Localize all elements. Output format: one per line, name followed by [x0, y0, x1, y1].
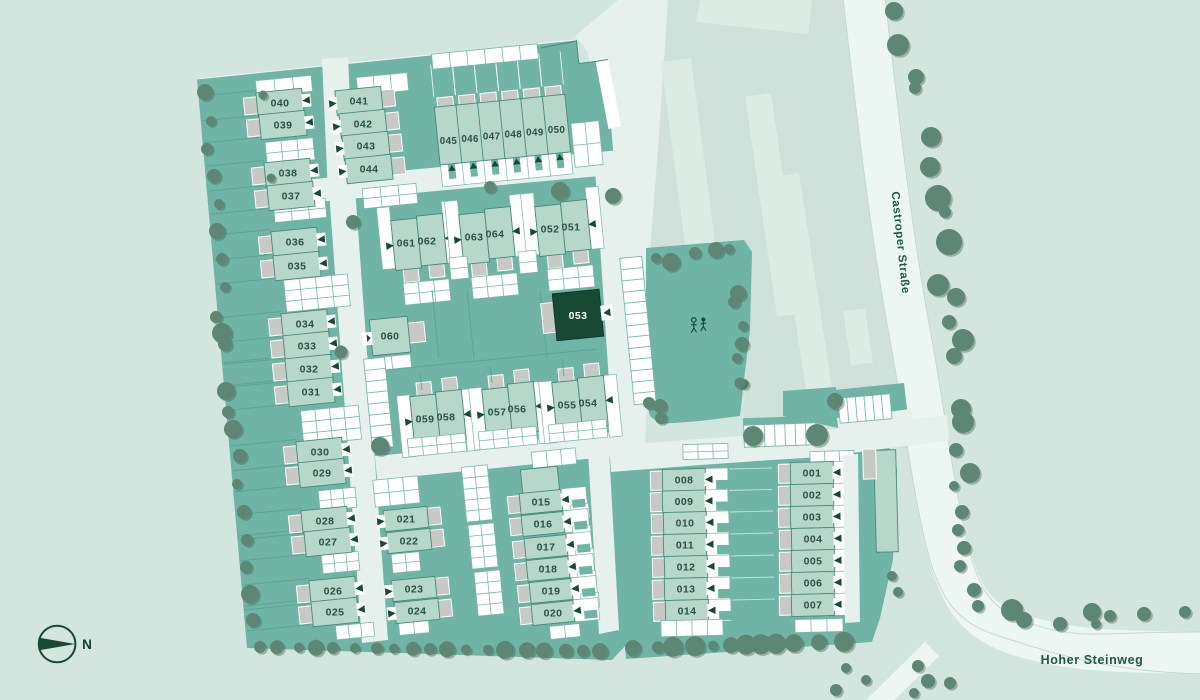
- svg-text:018: 018: [539, 564, 558, 576]
- svg-text:007: 007: [804, 600, 823, 612]
- svg-text:011: 011: [676, 540, 694, 552]
- svg-text:009: 009: [675, 496, 694, 508]
- svg-text:036: 036: [286, 237, 305, 249]
- svg-text:045: 045: [440, 136, 458, 147]
- svg-text:023: 023: [405, 584, 424, 596]
- svg-text:N: N: [82, 637, 92, 652]
- svg-text:056: 056: [508, 404, 527, 416]
- svg-text:015: 015: [532, 497, 551, 509]
- svg-text:038: 038: [279, 168, 298, 180]
- svg-text:004: 004: [804, 534, 823, 546]
- svg-text:052: 052: [541, 224, 560, 236]
- svg-text:031: 031: [302, 387, 321, 399]
- svg-text:029: 029: [313, 468, 332, 480]
- svg-text:003: 003: [803, 512, 822, 524]
- svg-text:037: 037: [282, 191, 301, 203]
- svg-text:024: 024: [408, 606, 427, 618]
- svg-text:010: 010: [676, 518, 695, 530]
- svg-text:041: 041: [350, 96, 369, 108]
- svg-text:019: 019: [542, 586, 561, 598]
- svg-text:035: 035: [288, 261, 307, 273]
- svg-text:020: 020: [544, 608, 563, 620]
- svg-text:055: 055: [558, 400, 577, 412]
- svg-text:025: 025: [326, 607, 345, 619]
- svg-text:017: 017: [537, 542, 556, 554]
- svg-text:032: 032: [300, 364, 319, 376]
- svg-text:001: 001: [803, 468, 822, 480]
- svg-text:034: 034: [296, 319, 315, 331]
- svg-text:040: 040: [271, 98, 290, 110]
- svg-text:008: 008: [675, 475, 694, 487]
- svg-text:Hoher Steinweg: Hoher Steinweg: [1041, 653, 1144, 667]
- svg-text:014: 014: [678, 606, 697, 618]
- svg-text:022: 022: [400, 536, 419, 548]
- svg-text:051: 051: [562, 222, 581, 234]
- svg-text:043: 043: [357, 141, 376, 153]
- svg-text:016: 016: [534, 519, 553, 531]
- svg-text:049: 049: [526, 127, 544, 138]
- svg-text:053: 053: [569, 310, 588, 322]
- svg-text:002: 002: [803, 490, 822, 502]
- svg-text:026: 026: [324, 586, 343, 598]
- svg-text:064: 064: [486, 229, 505, 241]
- svg-text:061: 061: [397, 238, 416, 250]
- svg-text:062: 062: [418, 236, 437, 248]
- svg-text:063: 063: [465, 232, 484, 244]
- svg-text:048: 048: [505, 130, 523, 141]
- svg-text:033: 033: [298, 341, 317, 353]
- svg-text:012: 012: [677, 562, 696, 574]
- svg-text:005: 005: [804, 556, 823, 568]
- svg-text:050: 050: [548, 125, 566, 136]
- svg-text:060: 060: [381, 331, 400, 343]
- svg-text:030: 030: [311, 447, 330, 459]
- svg-text:054: 054: [579, 398, 598, 410]
- svg-text:046: 046: [461, 134, 479, 145]
- svg-text:044: 044: [360, 164, 379, 176]
- svg-text:059: 059: [416, 414, 435, 426]
- svg-text:042: 042: [354, 119, 373, 131]
- svg-text:028: 028: [316, 516, 335, 528]
- svg-text:057: 057: [488, 407, 507, 419]
- svg-text:021: 021: [397, 514, 416, 526]
- svg-text:006: 006: [804, 578, 823, 590]
- svg-text:027: 027: [319, 537, 338, 549]
- svg-text:058: 058: [437, 412, 456, 424]
- svg-text:013: 013: [677, 584, 696, 596]
- svg-text:039: 039: [274, 120, 293, 132]
- svg-text:047: 047: [483, 132, 501, 143]
